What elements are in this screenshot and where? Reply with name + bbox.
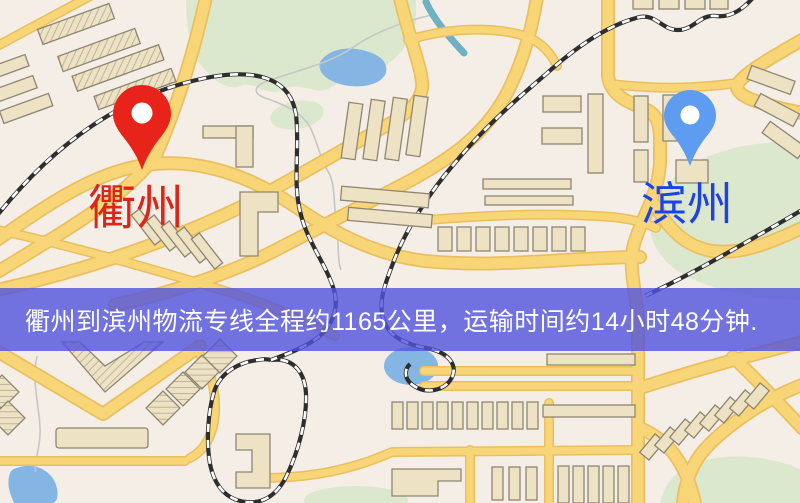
route-info-text: 衢州到滨州物流专线全程约1165公里，运输时间约14小时48分钟. [0, 302, 758, 338]
origin-pin-hole [132, 103, 153, 124]
destination-pin-hole [681, 106, 700, 125]
route-info-banner: 衢州到滨州物流专线全程约1165公里，运输时间约14小时48分钟. [0, 288, 800, 351]
map-canvas[interactable]: 衢州 滨州 [0, 0, 800, 503]
map-view[interactable]: 衢州 滨州 衢州到滨州物流专线全程约1165公里，运输时间约14小时48分钟. [0, 0, 800, 503]
destination-label: 滨州 [641, 178, 733, 230]
origin-label: 衢州 [88, 182, 184, 235]
